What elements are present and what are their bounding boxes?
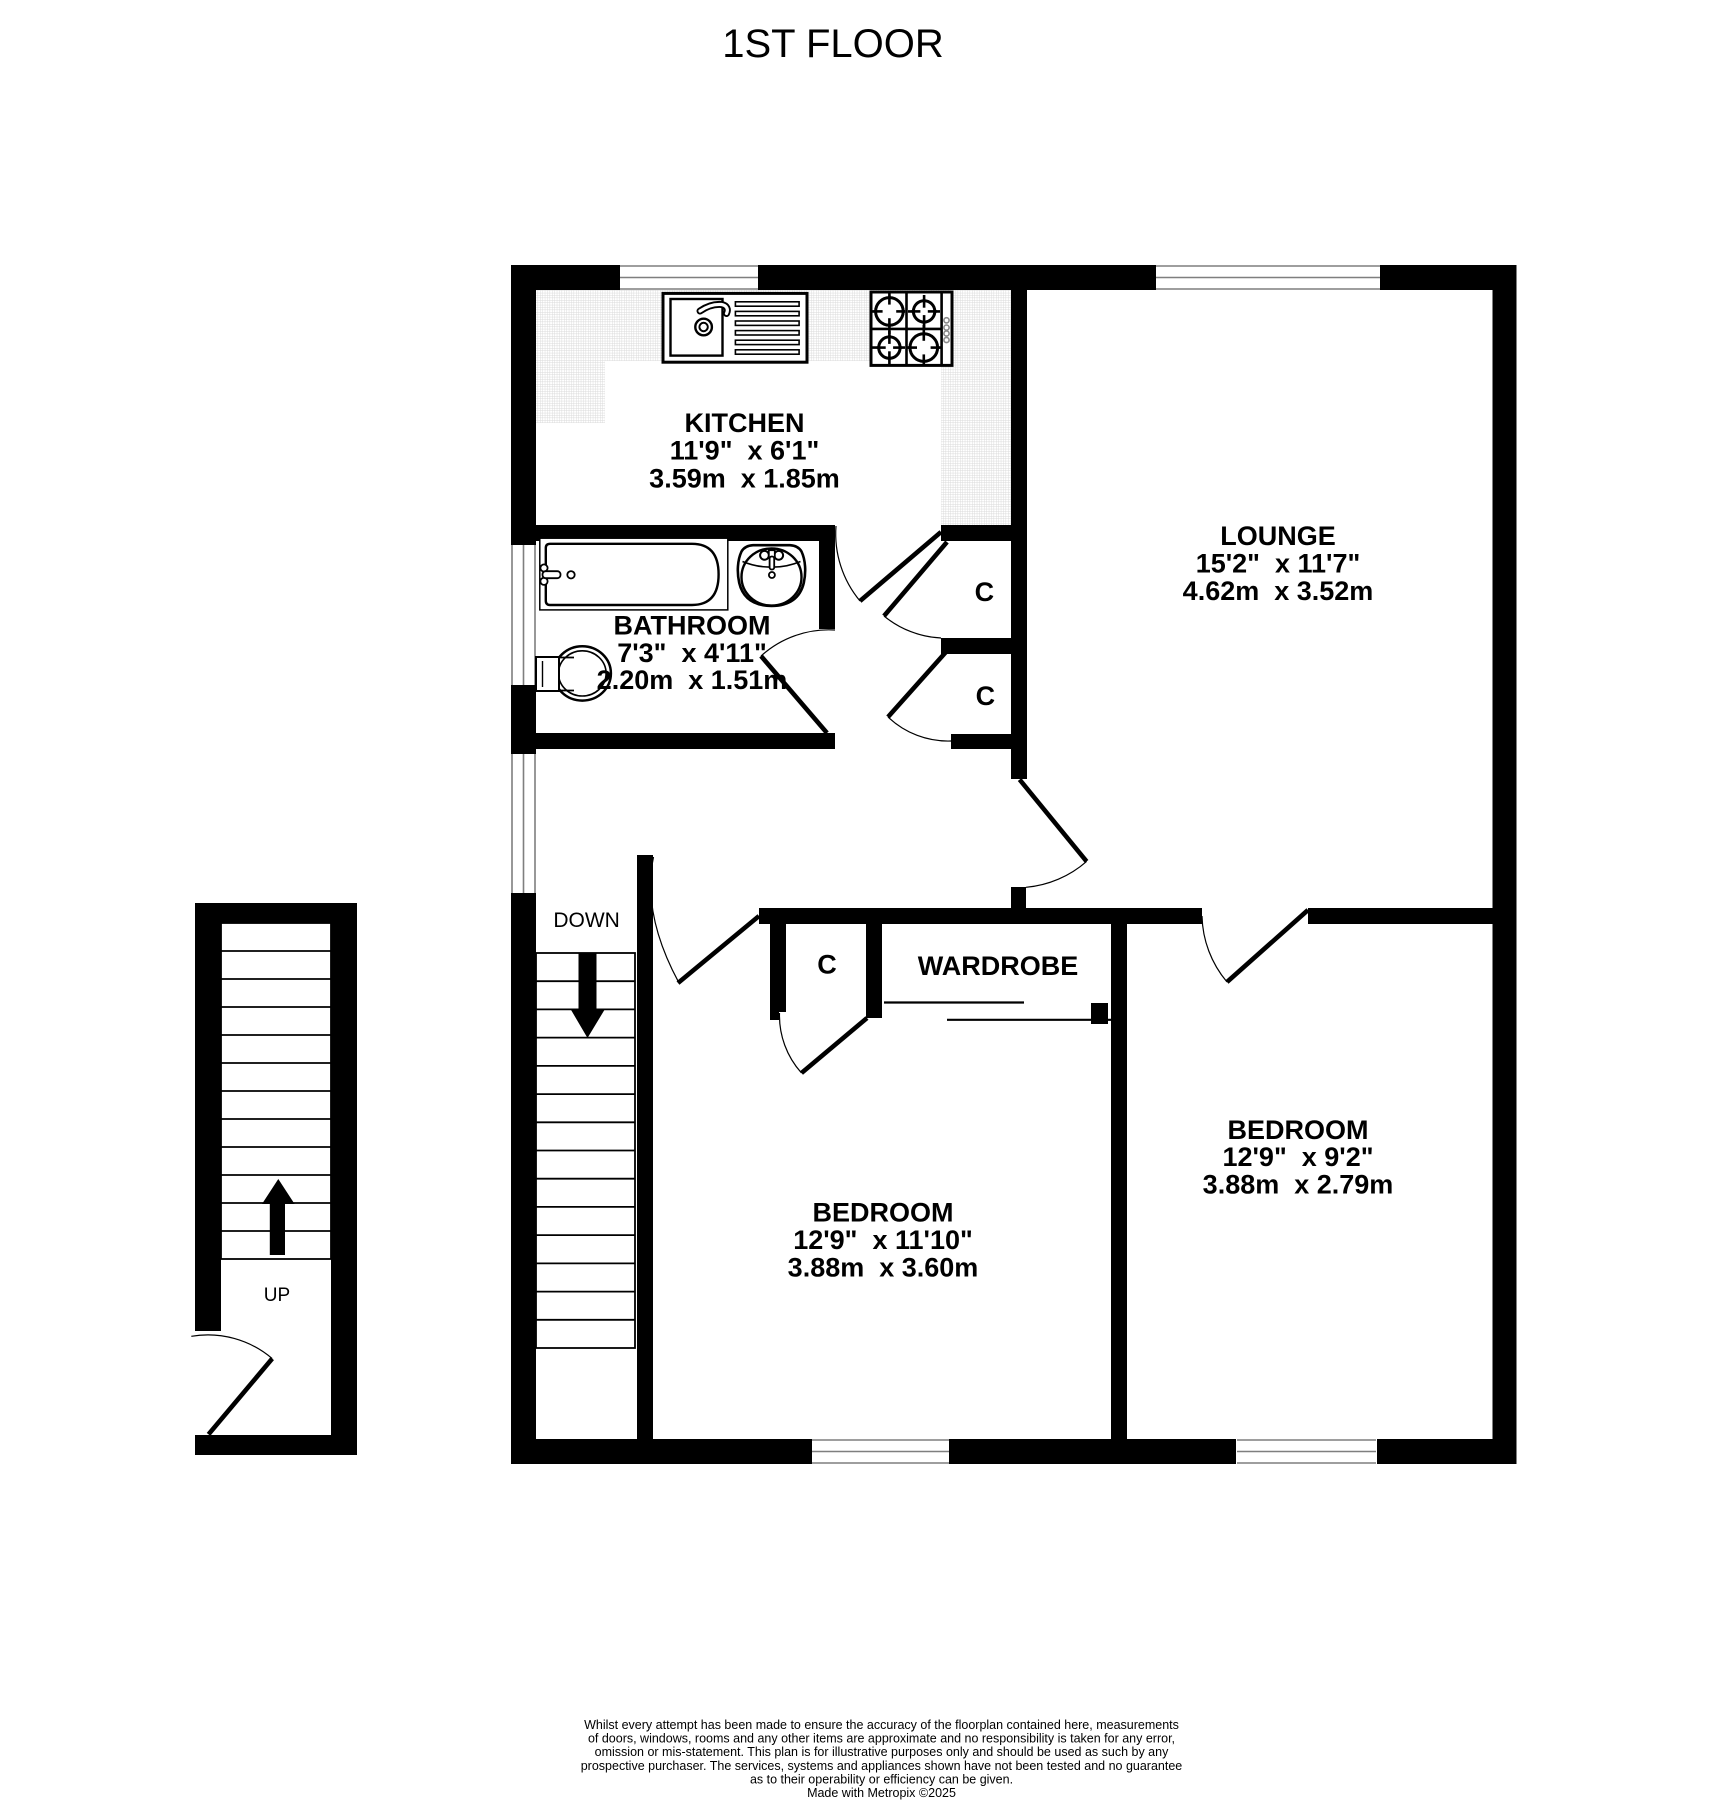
svg-text:12'9" x 9'2": 12'9" x 9'2" <box>1222 1142 1373 1172</box>
svg-text:7'3" x 4'11": 7'3" x 4'11" <box>617 638 767 668</box>
svg-text:BEDROOM: BEDROOM <box>1228 1115 1369 1145</box>
svg-text:C: C <box>976 681 996 711</box>
svg-text:BEDROOM: BEDROOM <box>813 1198 954 1228</box>
svg-text:UP: UP <box>264 1285 290 1306</box>
svg-text:DOWN: DOWN <box>553 909 620 932</box>
svg-text:prospective purchaser. The ser: prospective purchaser. The services, sys… <box>581 1759 1183 1773</box>
svg-text:1ST FLOOR: 1ST FLOOR <box>722 22 944 66</box>
svg-text:omission or mis-statement. Thi: omission or mis-statement. This plan is … <box>595 1745 1169 1759</box>
svg-text:as to their operability or eff: as to their operability or efficiency ca… <box>750 1773 1013 1787</box>
svg-text:Whilst every attempt has been: Whilst every attempt has been made to en… <box>584 1718 1179 1732</box>
svg-text:3.59m x 1.85m: 3.59m x 1.85m <box>649 463 840 493</box>
svg-text:12'9" x 11'10": 12'9" x 11'10" <box>793 1225 973 1255</box>
svg-text:4.62m x 3.52m: 4.62m x 3.52m <box>1183 576 1374 606</box>
svg-text:BATHROOM: BATHROOM <box>614 610 771 640</box>
svg-text:2.20m x 1.51m: 2.20m x 1.51m <box>597 665 788 695</box>
svg-text:KITCHEN: KITCHEN <box>685 408 805 438</box>
svg-text:3.88m x 2.79m: 3.88m x 2.79m <box>1203 1170 1394 1200</box>
svg-text:15'2" x 11'7": 15'2" x 11'7" <box>1196 549 1361 579</box>
svg-text:Made with Metropix ©2025: Made with Metropix ©2025 <box>807 1786 956 1800</box>
svg-text:C: C <box>975 577 995 607</box>
svg-text:WARDROBE: WARDROBE <box>918 951 1079 981</box>
svg-text:C: C <box>817 950 837 980</box>
svg-text:LOUNGE: LOUNGE <box>1220 521 1336 551</box>
svg-text:11'9" x 6'1": 11'9" x 6'1" <box>670 436 820 466</box>
svg-text:of doors, windows, rooms and a: of doors, windows, rooms and any other i… <box>588 1732 1175 1746</box>
svg-text:3.88m x 3.60m: 3.88m x 3.60m <box>788 1252 979 1282</box>
